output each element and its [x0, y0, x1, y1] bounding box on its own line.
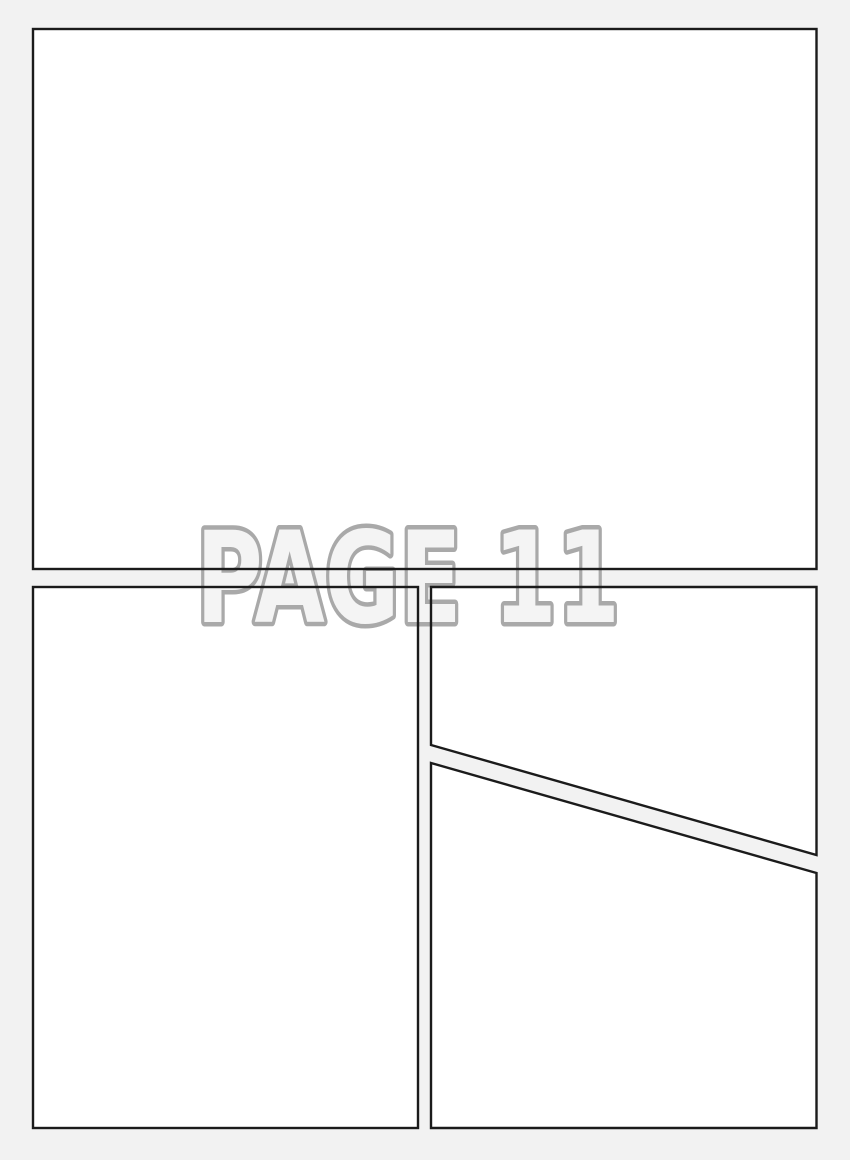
comic-page-svg: PAGE 11 — [0, 0, 850, 1160]
page-title: PAGE 11 — [196, 504, 620, 652]
bottom-left-panel-fill — [33, 587, 418, 1128]
top-panel-fill — [33, 29, 817, 569]
comic-page-template: PAGE 11 — [0, 0, 850, 1160]
